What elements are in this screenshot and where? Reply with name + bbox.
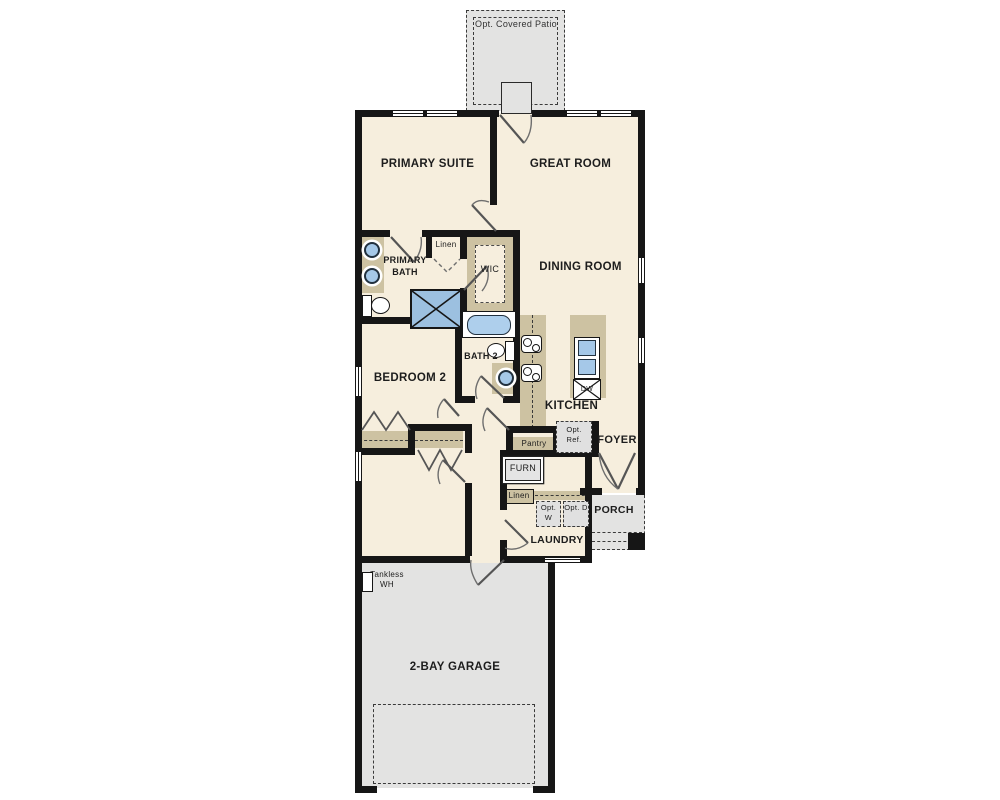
burner-icon: [532, 373, 540, 381]
wall: [506, 426, 513, 452]
wall: [455, 396, 475, 403]
bedroom2-closet-rod: [359, 440, 408, 441]
label-opt-ref: Opt. Ref.: [560, 425, 588, 445]
label-opt-d: Opt. D: [564, 503, 588, 513]
wall: [548, 556, 555, 793]
label-tankless-wh: Tankless WH: [364, 570, 410, 591]
floor-plan: Opt. Covered Patio PRIMARY SUITE GREAT R…: [0, 0, 1000, 800]
label-pantry: Pantry: [514, 439, 554, 449]
label-opt-w: Opt. W: [537, 503, 560, 523]
label-great-room: GREAT ROOM: [518, 157, 623, 172]
bedroom3-closet-rod: [415, 440, 463, 441]
bathtub-basin: [467, 315, 511, 335]
label-dining-room: DINING ROOM: [538, 260, 623, 275]
wall: [533, 786, 555, 793]
wall: [355, 448, 415, 455]
label-primary-suite: PRIMARY SUITE: [375, 157, 480, 172]
window: [600, 110, 632, 117]
label-laundry: LAUNDRY: [518, 534, 596, 548]
burner-icon: [523, 367, 532, 376]
wall: [412, 424, 468, 431]
label-primary-bath: PRIMARY BATH: [374, 255, 436, 278]
window: [638, 337, 645, 364]
label-garage: 2-BAY GARAGE: [409, 660, 501, 675]
wall: [490, 117, 497, 205]
wall: [503, 396, 520, 403]
label-patio: Opt. Covered Patio: [468, 19, 564, 31]
porch-post: [628, 533, 645, 550]
wall: [355, 556, 470, 563]
shower: [410, 289, 462, 329]
laundry-threshold: [544, 557, 581, 563]
window: [638, 257, 645, 284]
wall: [465, 483, 472, 556]
label-furn: FURN: [507, 463, 539, 475]
label-kitchen: KITCHEN: [529, 399, 614, 414]
window: [392, 110, 424, 117]
garage-door: [373, 704, 535, 784]
patio-door-landing: [501, 82, 532, 114]
toilet-icon: [505, 341, 515, 361]
label-dw: DW: [574, 385, 600, 394]
label-linen-laundry: Linen: [505, 491, 533, 501]
wall: [636, 488, 645, 495]
island-sink-bowl: [578, 340, 596, 356]
toilet-icon: [371, 297, 390, 314]
wall: [362, 230, 390, 237]
island-sink-bowl: [578, 359, 596, 375]
wall: [508, 426, 556, 433]
wall: [422, 230, 520, 237]
wall: [465, 424, 472, 453]
laundry-shelf-rod: [535, 495, 590, 496]
wall: [500, 540, 507, 556]
sink-icon: [498, 370, 514, 386]
burner-icon: [523, 338, 532, 347]
window: [355, 451, 362, 482]
burner-icon: [532, 344, 540, 352]
label-wic: WIC: [474, 264, 506, 276]
window: [566, 110, 598, 117]
label-porch: PORCH: [589, 504, 639, 518]
label-linen-bath: Linen: [430, 240, 462, 250]
wall: [355, 786, 377, 793]
window: [426, 110, 458, 117]
label-bedroom2: BEDROOM 2: [360, 371, 460, 386]
label-foyer: FOYER: [594, 433, 640, 447]
wall: [580, 488, 602, 495]
label-bath2: BATH 2: [460, 351, 502, 363]
